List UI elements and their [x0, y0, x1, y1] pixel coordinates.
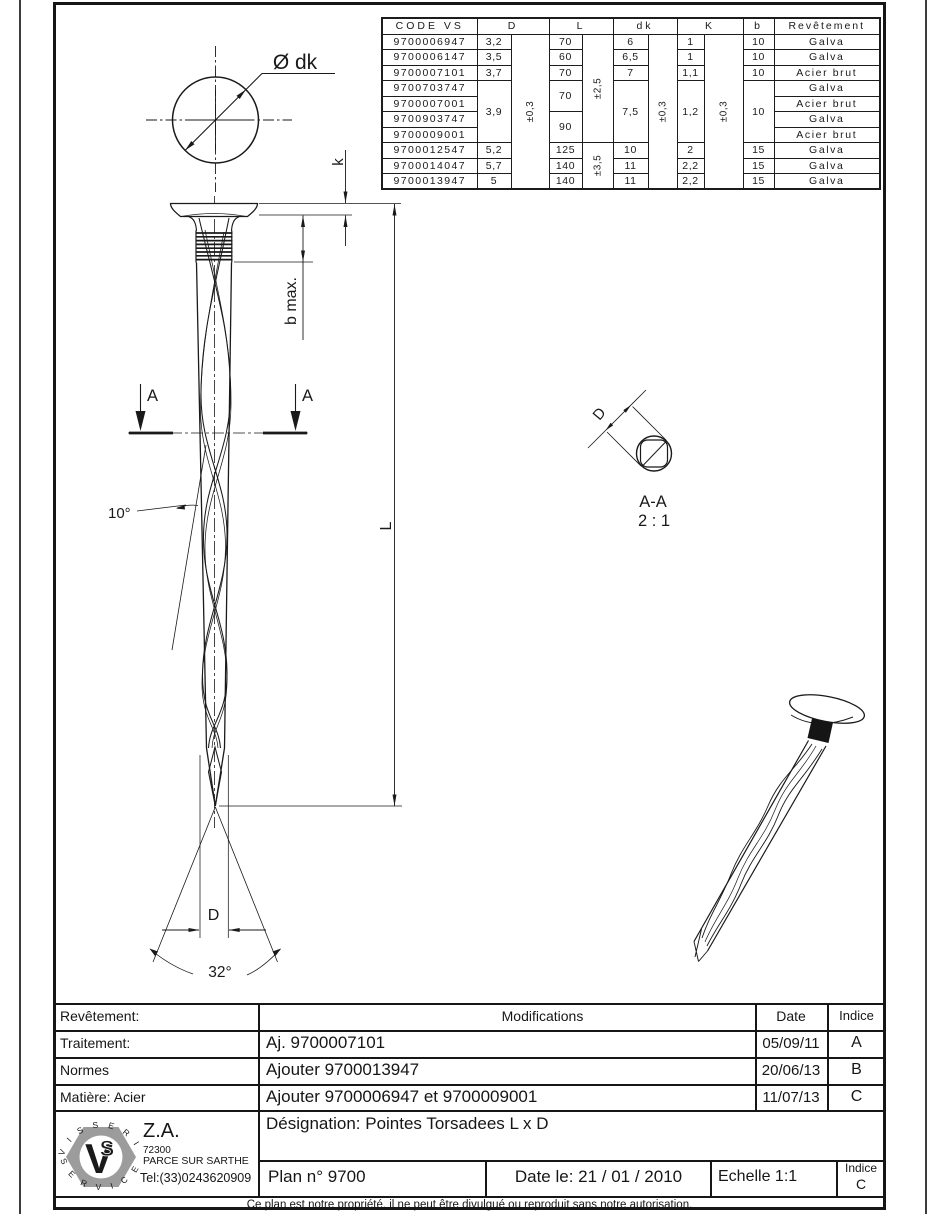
- col-k: K: [677, 18, 743, 34]
- modification-indice: B: [827, 1061, 886, 1079]
- modification-text: Ajouter 9700006947 et 9700009001: [266, 1087, 537, 1107]
- modifications-header: Modifications: [258, 1008, 827, 1024]
- dk-tolerance: ±0,3: [648, 34, 677, 189]
- col-l: L: [549, 18, 613, 34]
- section-cut-line: A A: [128, 384, 313, 433]
- head-diameter-label: Ø dk: [273, 51, 318, 74]
- drawing-sheet: Ø dk: [0, 0, 940, 1214]
- spec-table: CODE VS D L dk K b Revêtement 9700006947…: [381, 17, 881, 190]
- l-tolerance-upper: ±2,5: [582, 34, 613, 143]
- label-matiere: Matière: Acier: [60, 1089, 146, 1105]
- section-name: A-A: [639, 493, 667, 511]
- tip-angle-label: 32°: [208, 964, 231, 981]
- section-d-label: D: [590, 404, 610, 423]
- plan-number: Plan n° 9700: [268, 1167, 366, 1187]
- designation: Désignation: Pointes Torsadees L x D: [266, 1114, 549, 1134]
- titleblock-line: [53, 1110, 886, 1112]
- titleblock-line: [53, 1057, 886, 1059]
- indice-label: Indice: [836, 1161, 886, 1175]
- nail-3d-view: [694, 689, 867, 961]
- k-tolerance: ±0,3: [704, 34, 743, 189]
- spec-row: 9700007101 3,7 70 7 1,1 10 Acier brut: [382, 65, 880, 81]
- k-dimension-label: k: [330, 158, 347, 166]
- modification-indice: A: [827, 1034, 886, 1052]
- spec-row: 9700012547 5,2 125 ±3,5 10 2 15 Galva: [382, 143, 880, 159]
- label-traitement: Traitement:: [60, 1035, 130, 1051]
- twist-angle-callout: 10°: [108, 445, 206, 650]
- col-revetement: Revêtement: [774, 18, 880, 34]
- cell-code: 9700006947: [382, 34, 477, 50]
- length-dimension: L: [378, 204, 397, 806]
- col-b: b: [743, 18, 774, 34]
- logo-ring-top: V I S S E R I E: [0, 0, 146, 1157]
- bmax-dimension: b max.: [283, 216, 305, 341]
- col-code: CODE VS: [382, 18, 477, 34]
- tip-angle-dimension: 32° D: [150, 755, 282, 981]
- twist-angle-label: 10°: [108, 505, 131, 522]
- modification-date: 05/09/11: [755, 1035, 827, 1052]
- shank-diameter-label: D: [208, 907, 220, 924]
- titleblock-line: [258, 1003, 260, 1198]
- company-city: PARCE SUR SARTHE: [143, 1155, 249, 1167]
- scale: Echelle 1:1: [718, 1168, 797, 1186]
- label-revetement: Revêtement:: [60, 1008, 139, 1024]
- col-d: D: [477, 18, 549, 34]
- spec-header-row: CODE VS D L dk K b Revêtement: [382, 18, 880, 34]
- cut-label-right: A: [302, 387, 313, 405]
- titleblock-line: [53, 1084, 886, 1086]
- length-dimension-label: L: [378, 521, 395, 530]
- spec-row: 9700013947 5 140 11 2,2 15 Galva: [382, 174, 880, 190]
- spec-row: 9700006147 3,5 60 6,5 1 10 Galva: [382, 50, 880, 66]
- col-dk: dk: [613, 18, 677, 34]
- modification-indice: C: [827, 1088, 886, 1106]
- spec-row: 9700014047 5,7 140 11 2,2 15 Galva: [382, 158, 880, 174]
- d-tolerance: ±0,3: [511, 34, 549, 189]
- nail-top-view: Ø dk: [146, 46, 335, 192]
- titleblock-line: [258, 1160, 886, 1162]
- section-scale: 2 : 1: [638, 512, 670, 530]
- section-view: D A-A 2 : 1: [588, 390, 672, 530]
- plan-date: Date le: 21 / 01 / 2010: [487, 1167, 710, 1187]
- modification-text: Ajouter 9700013947: [266, 1060, 419, 1080]
- spec-row: 9700006947 3,2 ±0,3 70 ±2,5 6 ±0,3 1 ±0,…: [382, 34, 880, 50]
- indice-value: C: [836, 1176, 886, 1192]
- head-height-dimension: k: [330, 150, 348, 246]
- titleblock-line: [710, 1160, 712, 1198]
- indice-header: Indice: [827, 1008, 886, 1023]
- titleblock-line: [53, 1196, 886, 1198]
- company-tel: Tel:(33)0243620909: [140, 1171, 251, 1185]
- cut-label-left: A: [147, 387, 158, 405]
- modification-date: 11/07/13: [755, 1089, 827, 1106]
- titleblock-line: [53, 1003, 886, 1005]
- bmax-dimension-label: b max.: [283, 277, 300, 325]
- modification-text: Aj. 9700007101: [266, 1033, 385, 1053]
- date-header: Date: [755, 1008, 827, 1024]
- modification-date: 20/06/13: [755, 1062, 827, 1079]
- footer-notice: Ce plan est notre propriété, il ne peut …: [53, 1199, 886, 1211]
- spec-row: 9700703747 3,9 70 7,5 1,2 10 Galva: [382, 81, 880, 97]
- titleblock-line: [53, 1030, 886, 1032]
- logo-monogram-s: S: [100, 1136, 115, 1161]
- company-za: Z.A.: [143, 1120, 180, 1143]
- label-normes: Normes: [60, 1062, 109, 1078]
- l-tolerance-lower: ±3,5: [582, 143, 613, 190]
